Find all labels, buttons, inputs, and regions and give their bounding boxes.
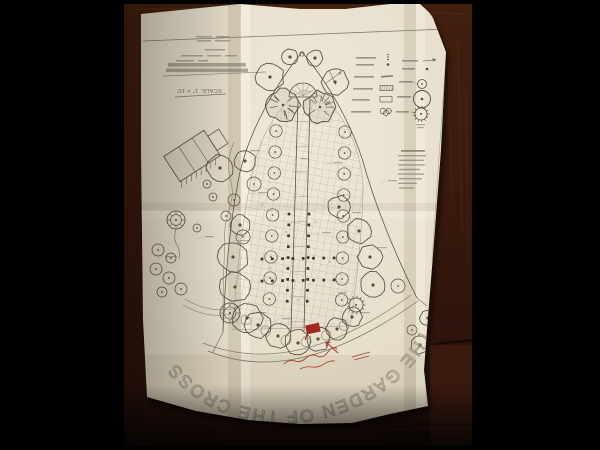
photo-stage: SCALE: 1" = 10' THE GARDEN OF THE CROSS (0, 0, 600, 450)
photo-of-garden-plan: SCALE: 1" = 10' THE GARDEN OF THE CROSS (0, 0, 600, 450)
lighting (0, 0, 600, 450)
